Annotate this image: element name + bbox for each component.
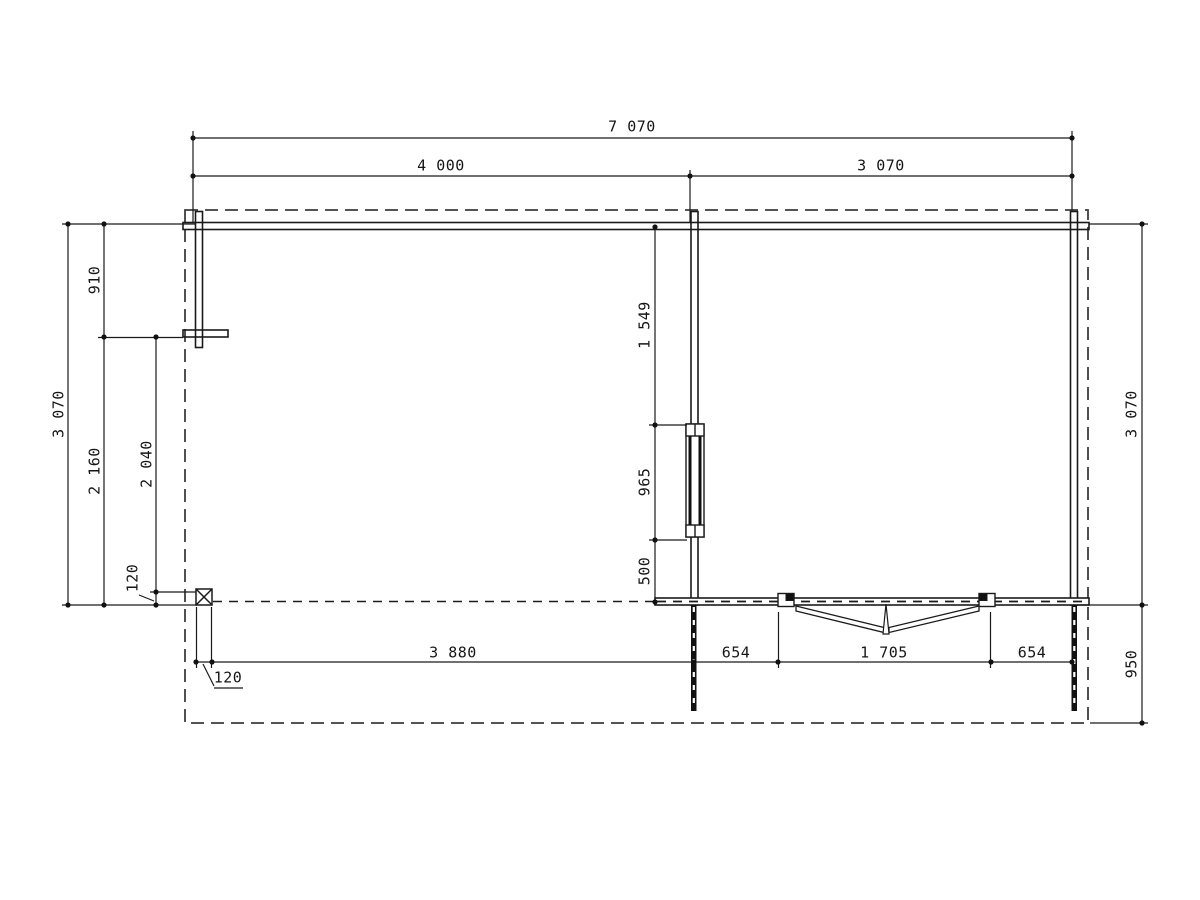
door-meeting-stile	[883, 604, 889, 634]
dim-label-left-post: 120	[126, 564, 141, 593]
dim-label-bottom-left-bay: 3 880	[429, 646, 477, 661]
dim-label-left-upper: 910	[88, 266, 103, 295]
dim-label-top-total: 7 070	[608, 120, 656, 135]
right-wall	[1071, 212, 1078, 606]
dim-label-left-of-door: 654	[722, 646, 751, 661]
dim-label-window: 965	[638, 468, 653, 497]
dim-label-right-of-door: 654	[1018, 646, 1047, 661]
walls	[183, 212, 1089, 606]
middle-wall	[691, 212, 698, 606]
floor-plan-canvas: 7 070 4 000 3 070 3 070 910 2 160 2 040 …	[0, 0, 1200, 900]
dim-label-left-total: 3 070	[52, 390, 67, 438]
door-leaf-right	[889, 606, 979, 633]
dim-label-right-depth: 3 070	[1125, 390, 1140, 438]
dim-label-bottom-post: 120	[214, 671, 243, 686]
dimension-dots	[65, 135, 1144, 725]
dim-label-door-width: 1 705	[860, 646, 908, 661]
dim-label-top-left-bay: 4 000	[417, 159, 465, 174]
leader-bottom-120	[203, 664, 214, 686]
left-wall	[196, 212, 203, 348]
top-wall	[183, 223, 1089, 230]
leader-left-120	[139, 595, 154, 601]
dim-label-above-window: 1 549	[638, 301, 653, 349]
dim-label-left-inner: 2 040	[140, 440, 155, 488]
dim-label-top-right-bay: 3 070	[857, 159, 905, 174]
corner-post	[196, 589, 212, 605]
roof-outline	[185, 210, 1088, 723]
window	[686, 424, 704, 537]
dim-label-right-porch: 950	[1125, 650, 1140, 679]
floor-plan-linework	[0, 0, 1200, 900]
left-wall-log-stub	[183, 330, 228, 337]
dim-label-below-window: 500	[638, 557, 653, 586]
dimension-lines	[62, 131, 1148, 723]
dim-label-left-lower: 2 160	[88, 447, 103, 495]
door-leaf-left	[796, 606, 884, 633]
